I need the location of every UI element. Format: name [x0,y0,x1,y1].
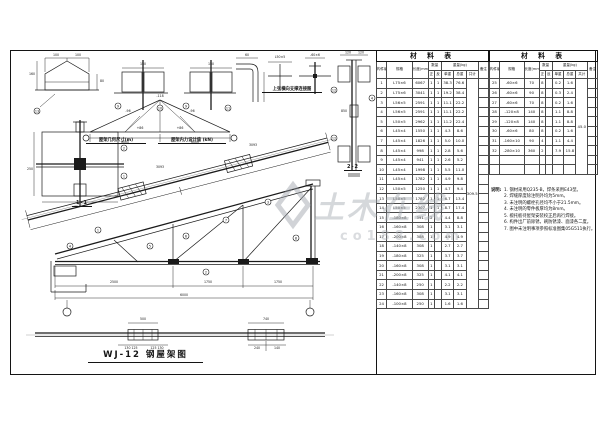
col-spec: 规格 [499,62,524,79]
svg-text:100: 100 [75,53,81,57]
svg-text:L50×5: L50×5 [275,55,286,59]
svg-text:160: 160 [29,72,35,76]
svg-text:-96: -96 [189,109,194,113]
top-chord-joint-detail-b [184,60,236,110]
svg-text:500: 500 [140,317,146,321]
col-qty-back: 反 [435,71,442,79]
svg-text:150: 150 [208,62,214,66]
col-w-unit: 单重 [441,71,453,79]
svg-text:4: 4 [69,244,71,248]
svg-text:-118: -118 [156,94,163,98]
drawing-sheet: 1001001608015015060L50×5-60×612012085025… [0,0,610,432]
col-note: 备注 [588,62,598,79]
notes-block: 说明: 1. 钢材采用Q235-B，焊条采用E43型。2. 焊缝厚度除注明外均为… [504,188,598,233]
svg-text:-96: -96 [125,109,130,113]
svg-text:120: 120 [345,51,351,55]
col-qty: 数量 [539,62,552,71]
col-no: 构件编号 [377,62,387,79]
section-2-2-label: 2-2 [344,164,362,171]
col-no: 构件编号 [490,62,500,79]
section-1-1-detail [34,120,124,206]
vertical-member-detail [338,55,370,176]
svg-text:+86: +86 [137,126,144,130]
svg-text:-60×6: -60×6 [310,53,320,57]
col-weight: 重量(kg) [552,62,588,71]
bent-plate-detail [236,58,264,102]
svg-text:80: 80 [100,79,104,83]
col-spec: 规格 [387,62,413,79]
svg-text:2: 2 [123,146,125,150]
svg-text:8: 8 [295,236,297,240]
svg-text:11: 11 [226,106,230,110]
svg-text:12: 12 [332,136,336,140]
svg-text:3: 3 [267,200,269,204]
svg-text:740: 740 [263,317,269,321]
top-chord-member-drawing [20,131,338,235]
svg-text:240: 240 [254,346,260,350]
svg-text:4: 4 [371,96,373,100]
material-table-left: 材 料 表 构件编号 规格 长度(mm) 数量 重量(kg) 备注 正 反 单重… [376,50,489,309]
svg-text:100: 100 [53,53,59,57]
svg-text:13: 13 [35,109,39,113]
angle-section-detail [268,62,292,88]
svg-text:2500: 2500 [110,280,118,284]
svg-text:120: 120 [358,51,364,55]
forces-label: 屋架内力设计值 (kN) [158,138,226,144]
col-w-total: 总重 [454,71,466,79]
svg-text:6: 6 [185,234,187,238]
geometry-label: 屋架几何尺寸(m) [86,138,146,144]
bracing-label: 上弦横向支撑连接图 [262,87,322,93]
svg-text:6000: 6000 [180,293,188,297]
material-table-right: 材 料 表 构件编号 规格 长度(mm) 数量 重量(kg) 备注 正 反 单重… [489,50,598,175]
section-1-1-label: 1-1 [72,200,92,207]
svg-text:60: 60 [245,53,249,57]
col-len: 长度(mm) [412,62,428,79]
col-w-total: 总重 [564,71,576,79]
material-rows-right: 25-60×67080.21.645.026-60×69080.32.427-6… [490,79,598,175]
col-w-sum: 共计 [576,71,588,79]
col-w-sum: 共计 [466,71,478,79]
svg-text:150: 150 [140,62,146,66]
svg-text:1: 1 [123,174,125,178]
svg-text:250: 250 [27,167,33,171]
svg-text:2: 2 [205,270,207,274]
svg-text:1750: 1750 [204,280,212,284]
svg-text:7: 7 [225,218,227,222]
svg-text:1750: 1750 [274,280,282,284]
svg-text:1: 1 [97,228,99,232]
svg-text:5: 5 [149,244,151,248]
bottom-chord-member-drawing [26,323,334,351]
svg-text:9: 9 [185,104,187,108]
notes-heading: 说明: [491,188,501,194]
svg-text:3093: 3093 [249,143,257,147]
table-title: 材 料 表 [490,51,598,62]
cad-linework: 1001001608015015060L50×5-60×612012085025… [10,50,376,375]
table-title: 材 料 表 [377,51,489,62]
svg-text:140: 140 [274,346,280,350]
drawing-title: WJ-12 钢屋架图 [88,348,203,363]
material-rows-left: 1L75×660671138.376.6309.52L75×630411119.… [377,79,489,309]
col-note: 备注 [478,62,488,79]
svg-text:850: 850 [341,109,347,113]
svg-text:12: 12 [332,88,336,92]
svg-text:10: 10 [158,106,162,110]
svg-text:+86: +86 [177,126,184,130]
svg-text:9: 9 [117,104,119,108]
col-len: 长度(mm) [524,62,539,79]
col-weight: 重量(kg) [441,62,478,71]
gusset-plate-detail [35,58,99,107]
svg-text:3093: 3093 [156,165,164,169]
member-balloons: 13910911124122115673824 [34,87,375,275]
col-w-unit: 单重 [552,71,564,79]
col-qty: 数量 [428,62,441,71]
col-qty-front: 正 [428,71,435,79]
